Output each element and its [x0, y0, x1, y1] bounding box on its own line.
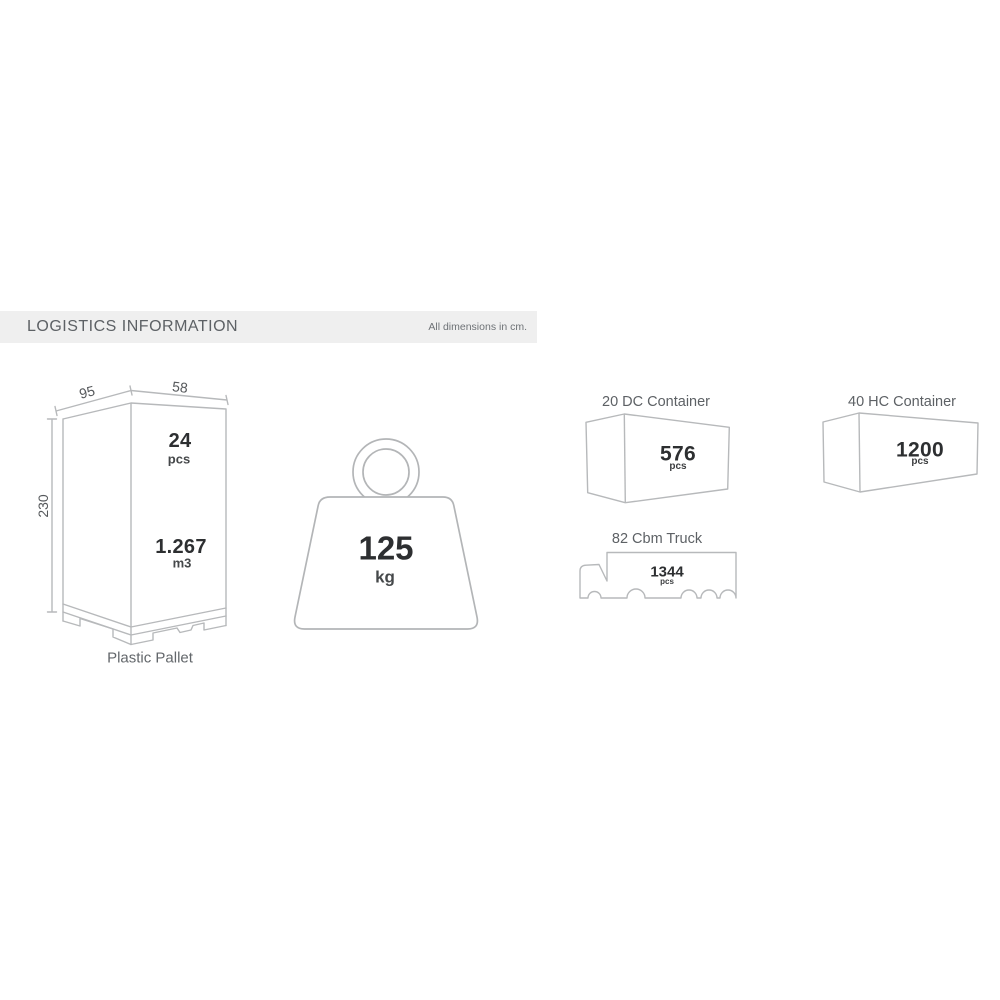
pallet-pieces-unit: pcs [168, 453, 190, 466]
pallet-volume-value: 1.267 [155, 537, 207, 557]
weight-unit: kg [375, 569, 395, 586]
pallet-caption: Plastic Pallet [107, 651, 193, 666]
container-40hc-title: 40 HC Container [848, 395, 956, 410]
truck-title: 82 Cbm Truck [612, 532, 702, 547]
pallet-height-label: 230 [36, 494, 50, 517]
pallet-depth-label: 58 [172, 379, 189, 395]
container-20dc-edge [624, 414, 625, 503]
container-20dc-title: 20 DC Container [602, 395, 710, 410]
weight-ring-inner [363, 449, 409, 495]
pallet-pieces-value: 24 [169, 431, 192, 451]
container-20dc-pieces-unit: pcs [669, 462, 686, 472]
truck-pieces-unit: pcs [660, 578, 674, 586]
diagram-canvas [0, 0, 1000, 1000]
container-40hc-edge [859, 413, 860, 492]
pallet-box-edges [63, 403, 226, 645]
container-20dc-body [586, 414, 729, 503]
logistics-information-section: LOGISTICS INFORMATION All dimensions in … [0, 0, 1000, 1000]
weight-value: 125 [358, 532, 413, 565]
pallet-volume-unit: m3 [173, 557, 192, 570]
pallet-band-edges [63, 604, 226, 635]
pallet-width-label: 95 [78, 383, 97, 401]
pallet-feet [63, 619, 226, 645]
pallet-box-icon [48, 386, 229, 645]
container-40hc-pieces-unit: pcs [911, 457, 928, 467]
container-20dc-icon [586, 414, 729, 503]
